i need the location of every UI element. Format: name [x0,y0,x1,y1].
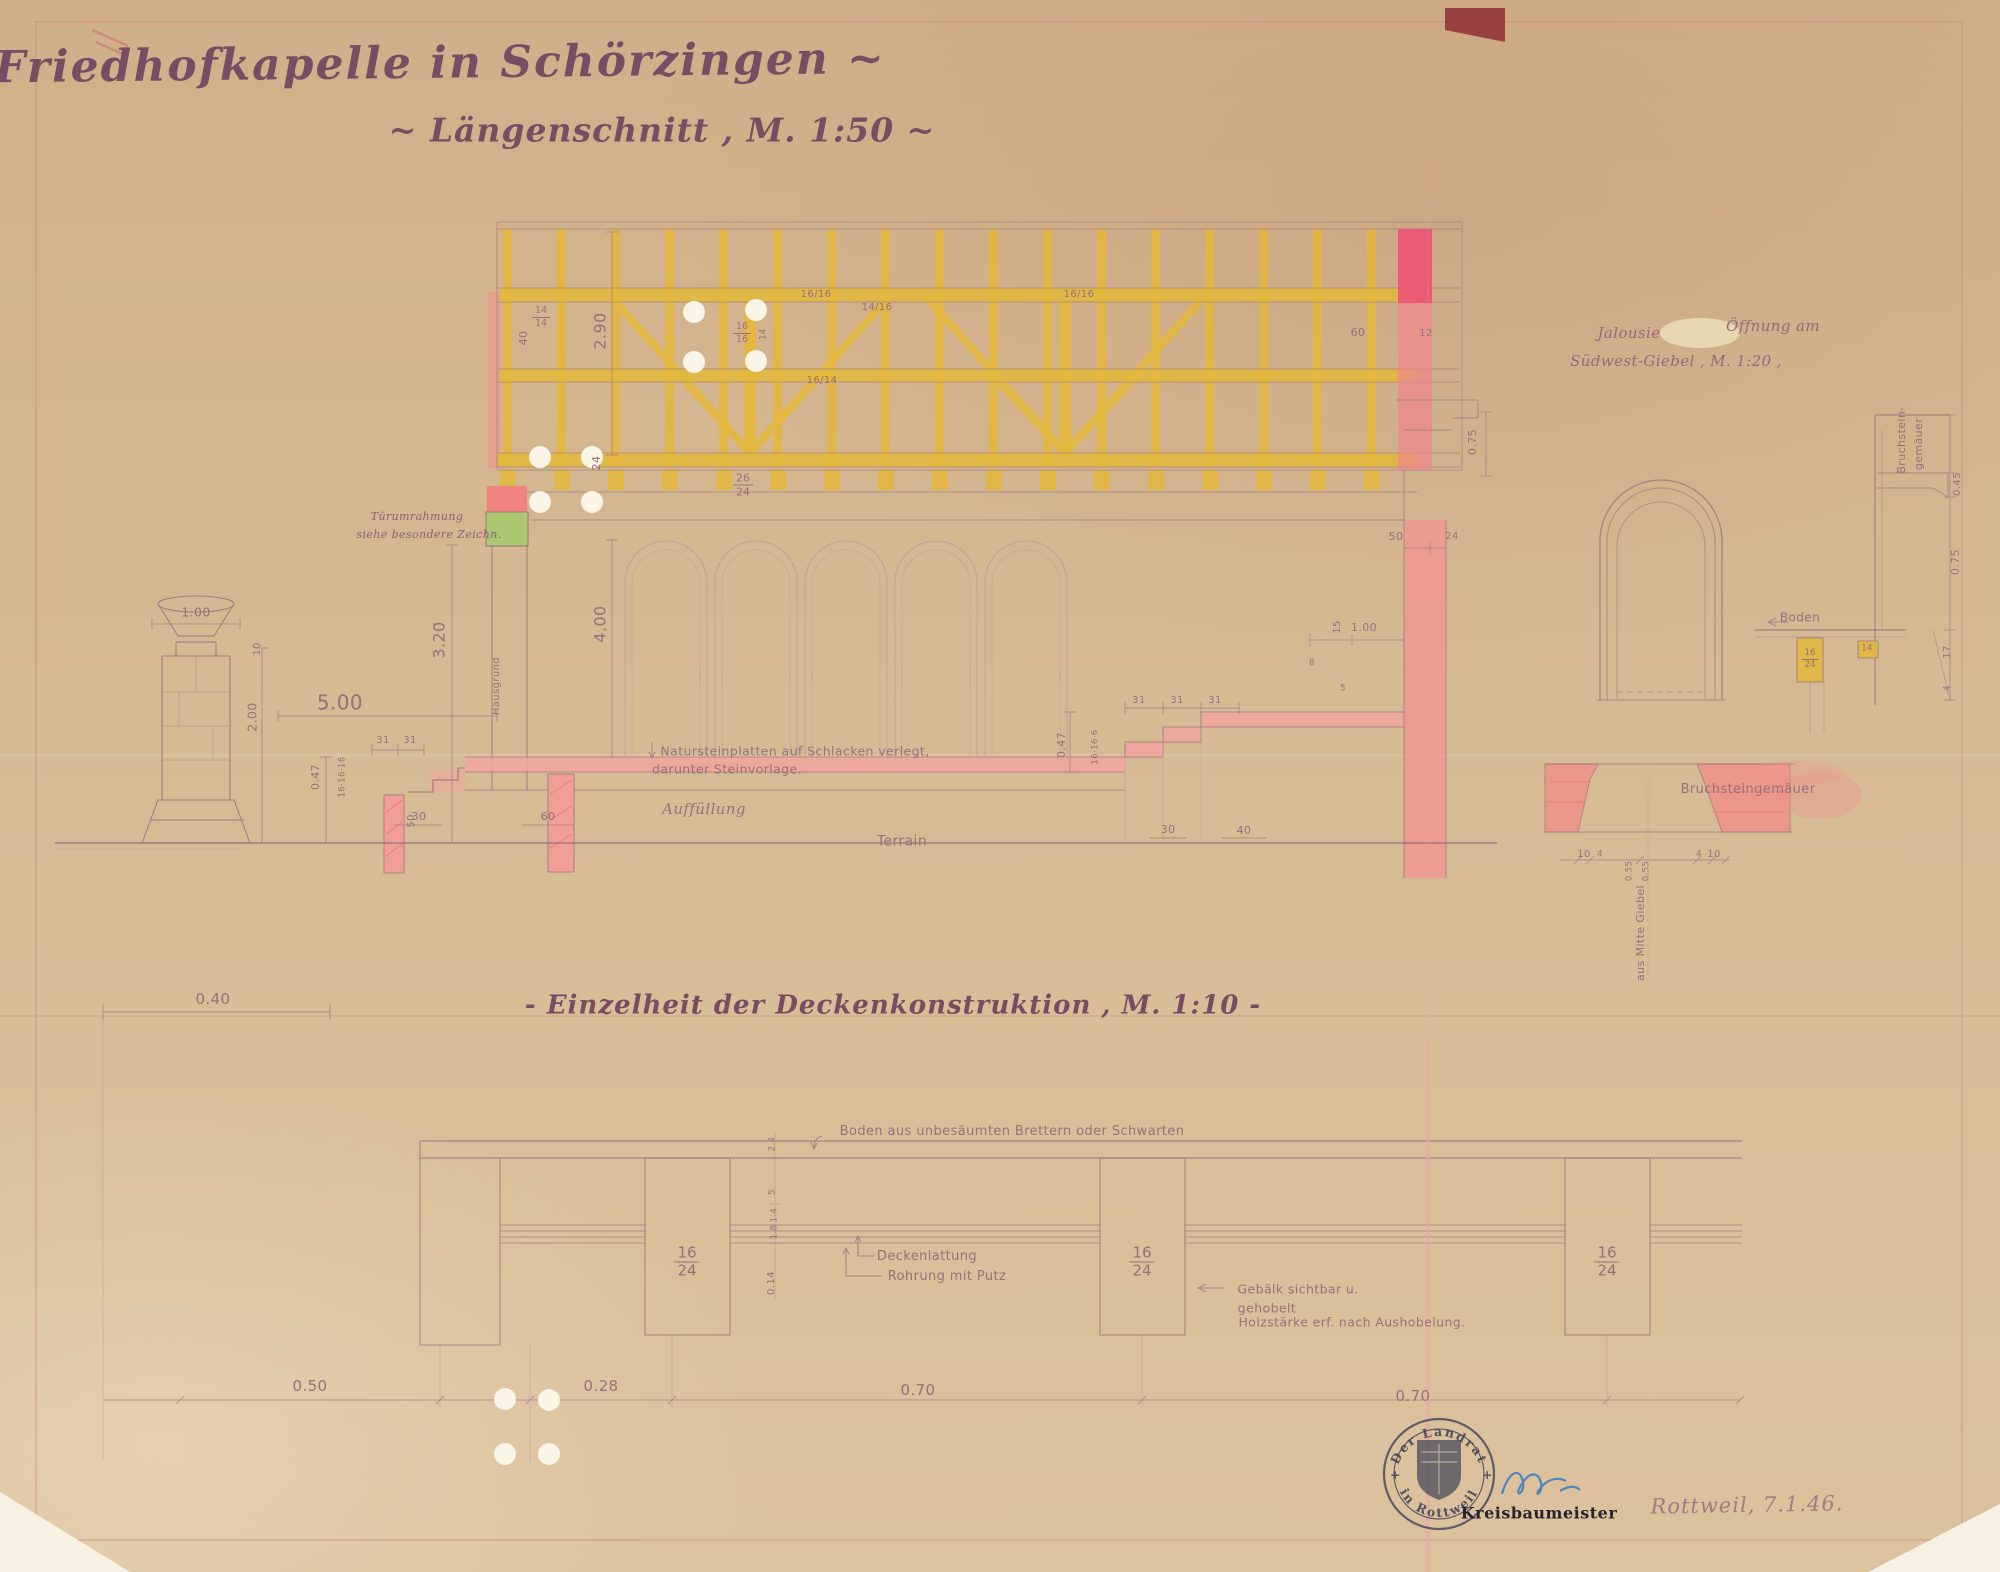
dim: 60 [541,811,556,823]
dim-beam-size: 1624 [1129,1246,1154,1279]
annotation-plaster: Rohrung mit Putz [888,1270,1007,1284]
annotation-rubble-2: gemäuer [1913,418,1925,470]
dim: 12 [1419,329,1433,340]
annotation-floor-plates-2: darunter Steinvorlage. [652,762,802,775]
dim: 0.55 [1643,861,1652,882]
detail-title: - Einzelheit der Deckenkonstruktion , M.… [525,992,1261,1019]
dim: 0.75 [1467,429,1479,455]
dim: 10 [1577,850,1591,861]
dim: 0.28 [584,1379,619,1395]
wall-highlight-pink [1398,229,1432,303]
dim: 24 [1445,532,1459,543]
dim-step: 31 [376,736,390,747]
dim-room-height: 4.00 [593,605,610,642]
dim-timber-size: 16/16 [801,290,832,301]
dim: 1.00 [1351,622,1377,634]
dim: 4 [1597,851,1603,860]
jalousie-window [1596,480,1726,700]
dim-timber-size: 14/16 [862,303,893,314]
dim: 0.40 [196,992,231,1008]
dim: 14 [1861,645,1873,654]
dim: 0.70 [901,1383,936,1399]
dim: 2.4 [769,1137,778,1152]
dim: 16·16·6 [1092,729,1101,764]
dim-wall-height: 3.20 [432,621,449,658]
foundation-pier [384,795,404,873]
dim: 0.75 [1950,549,1962,575]
dim-step: 31 [1208,696,1222,707]
dim: 1.8 [771,1225,780,1240]
dim: 24 [591,456,603,471]
dim: 40 [1237,825,1252,837]
dim: 0.14 [767,1271,778,1295]
jalousie-note-word2: Öffnung am [1726,319,1820,335]
annotation-floor-plates-1: Natursteinplatten auf Schlacken verlegt, [660,744,929,757]
roof-truss [488,222,1462,492]
dim: 30 [412,811,427,823]
place-date: Rottweil, 7.1.46. [1650,1492,1843,1517]
drawing-sheet: Der Landrat in Rottweil + + ~ Friedhofka… [0,0,2000,1572]
office-title: Kreisbaumeister [1461,1506,1617,1523]
dim-beam-size: 1624 [674,1246,699,1279]
dim-timber-size: 1616 [733,322,751,344]
stamp-star-left: + [1390,1467,1402,1482]
dim: 0.47 [310,764,322,790]
dim-timber-size: 16/16 [1064,290,1095,301]
annotation-rubble-1: Bruchstein- [1896,406,1908,473]
annotation-door-frame-2: siehe besondere Zeichn. [356,529,501,541]
dim: 1.4 [771,1208,780,1223]
wall-arches [625,541,1067,757]
dim: 0.70 [1396,1389,1431,1405]
dim-step: 31 [1132,696,1146,707]
stamp-star-right: + [1482,1467,1494,1482]
dim-truss-height: 2.90 [593,312,610,349]
dim: 40 [518,331,530,346]
dim-pedestal-height: 2.00 [245,702,258,731]
annotation-boden: Boden [1780,612,1820,625]
dim-basin-width: 1.00 [181,605,210,618]
annotation-terrain: Terrain [877,835,927,850]
section-title: ~ Längenschnitt , M. 1:50 ~ [389,114,936,149]
dim-step: 31 [403,736,417,747]
altar-platform [1201,712,1407,727]
annotation-floor-boards: Boden aus unbesäumten Brettern oder Schw… [840,1125,1185,1139]
annotation-hausgrund: Hausgrund [492,657,503,715]
signature [1502,1473,1580,1494]
dim: 10 [1707,850,1721,861]
dim-step: 31 [1170,696,1184,707]
dim-plate-size: 2624 [733,473,753,498]
dim: 14 [760,328,769,340]
annotation-rubble-masonry: Bruchsteingemäuer [1681,783,1816,797]
ceiling-detail [420,1141,1742,1345]
annotation-lathing: Deckenlattung [877,1250,977,1264]
dim: 10 [253,642,264,656]
dim: 8 [1309,660,1315,669]
dim: 5 [1340,685,1346,694]
dim: 0.50 [293,1379,328,1395]
signature-stroke [1502,1473,1580,1494]
page-title: ~ Friedhofkapelle in Schörzingen ~ [0,36,886,92]
dim: 0.55 [1626,861,1635,882]
dim: 0.45 [1953,472,1964,496]
dim-beam-size: 1624 [1802,649,1819,669]
dim: 15 [1333,620,1344,634]
dim-timber-size: 1414 [532,306,550,328]
dim-wall-thickness: 50 [1389,531,1404,543]
dim: 30 [1161,824,1176,836]
jalousie-note-line2: Südwest-Giebel , M. 1:20 , [1570,354,1782,370]
dim-beam-size: 1624 [1594,1246,1619,1279]
basin-pedestal [142,596,250,843]
corner-red-mark [1445,8,1505,42]
right-wall [1404,520,1446,878]
dim: 17 [1943,645,1954,659]
dim-timber-size: 16/14 [807,376,838,387]
annotation-door-frame-1: Türumrahmung [371,511,464,523]
annotation-fill: Auffüllung [662,802,746,818]
annotation-beams-3: Holzstärke erf. nach Aushobelung. [1239,1315,1466,1328]
annotation-gable-center: aus Mitte Giebel [1635,885,1647,981]
dim: 16·16·16 [339,756,348,797]
annotation-beams-1: Gebälk sichtbar u. [1237,1282,1358,1295]
door-head-red [487,486,527,512]
dim: 0.47 [1056,732,1068,758]
dim: 60 [1351,327,1366,339]
dim: 4 [1944,685,1953,691]
dim: 4 [1696,851,1702,860]
jalousie-note-word1: Jalousie [1597,326,1660,342]
dim: 5 [769,1189,778,1195]
annotation-beams-2: gehobelt [1238,1301,1296,1314]
dim-span-5m: 5.00 [317,693,363,714]
